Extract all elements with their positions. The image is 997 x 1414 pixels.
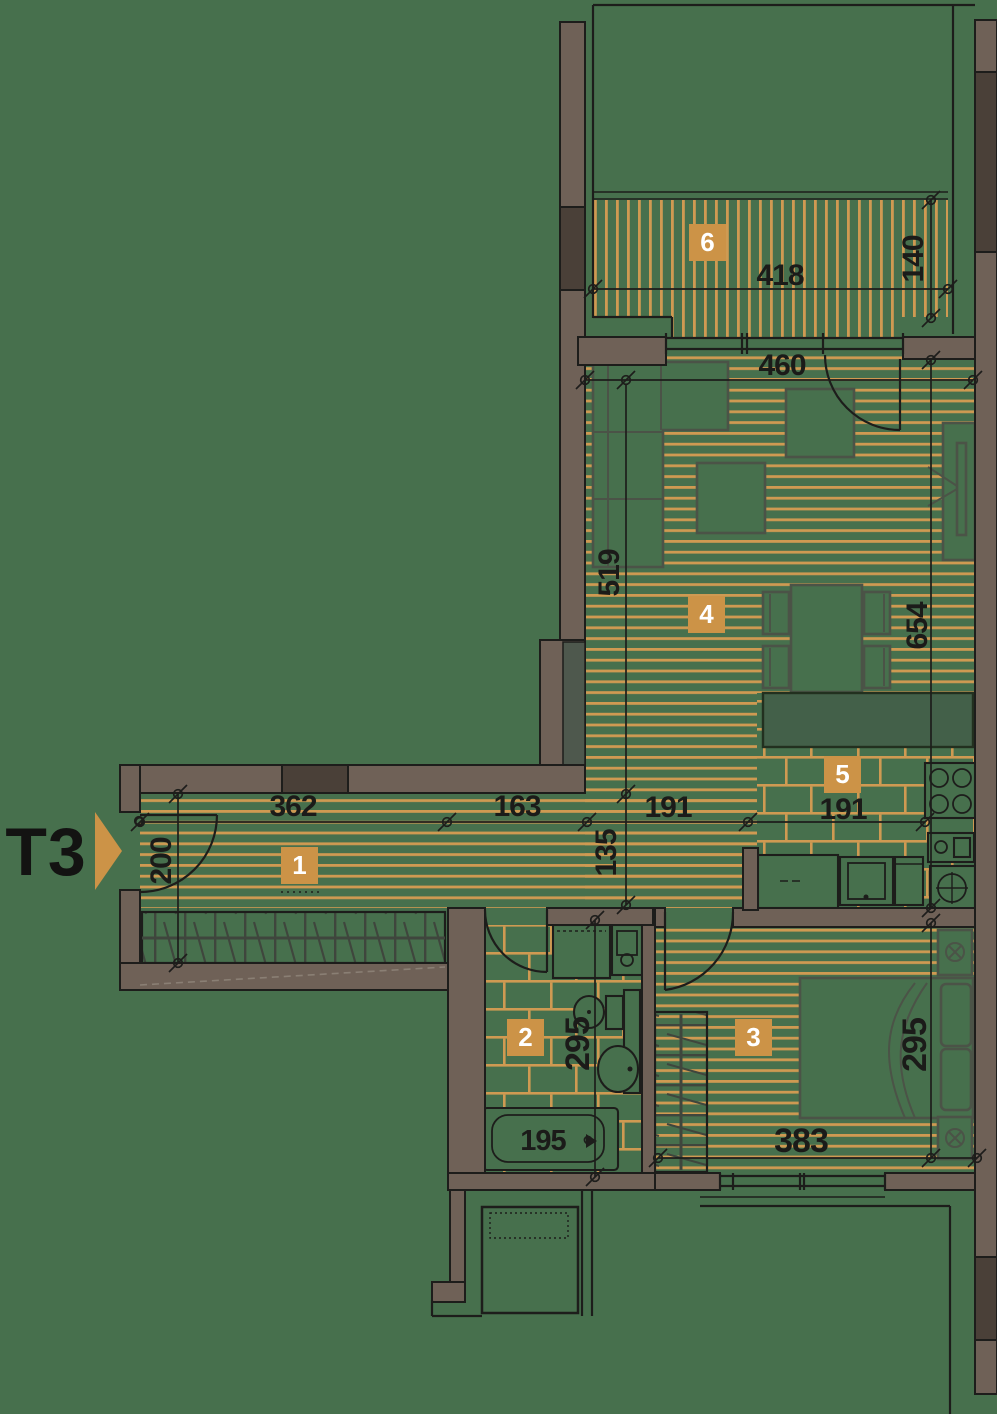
room-badge-2: 2 xyxy=(507,1019,544,1056)
coffee-table xyxy=(697,463,765,533)
kitchen-sink xyxy=(928,833,974,862)
dim-hall-segment-1: 362 xyxy=(243,792,343,822)
dim-hall-segment-3: 191 xyxy=(618,793,718,823)
stove xyxy=(925,763,975,818)
dim-hall-segment-2: 163 xyxy=(467,792,567,822)
dim-bathtub-length: 195 xyxy=(493,1126,593,1156)
dim-living-width: 460 xyxy=(732,351,832,381)
dim-balcony-depth: 140 xyxy=(899,209,929,309)
shaft-outline xyxy=(482,1207,578,1313)
room-badge-5: 5 xyxy=(824,756,861,793)
dim-bedroom-width: 383 xyxy=(751,1126,851,1156)
washbasin xyxy=(598,1046,638,1092)
dim-bedroom-depth: 295 xyxy=(900,995,930,1095)
floor-plan: T3 418 140 460 519 654 362 163 191 191 1… xyxy=(0,0,997,1414)
hall-closet xyxy=(142,912,445,963)
bedroom-wardrobe xyxy=(655,1012,707,1172)
room-badge-3: 3 xyxy=(735,1019,772,1056)
room-badge-6: 6 xyxy=(689,224,726,261)
dim-hall-depth: 135 xyxy=(592,803,622,903)
dim-living-right-depth: 654 xyxy=(903,576,933,676)
room-badge-4: 4 xyxy=(688,596,725,633)
kitchen-counter xyxy=(763,693,973,747)
washing-machine xyxy=(553,925,610,978)
dim-balcony-width: 418 xyxy=(730,261,830,291)
plan-drawing xyxy=(0,0,997,1414)
kitchen-appliances xyxy=(758,855,923,908)
dim-kitchen-width: 191 xyxy=(793,795,893,825)
nightstand-top xyxy=(938,930,972,975)
dim-living-left-depth: 519 xyxy=(595,523,625,623)
nightstand-bottom xyxy=(938,1117,972,1159)
unit-label: T3 xyxy=(0,816,92,888)
exterior-outlines xyxy=(432,1190,950,1414)
room-badge-1: 1 xyxy=(281,847,318,884)
dim-bathroom-depth: 295 xyxy=(563,994,593,1094)
entry-arrow xyxy=(95,812,122,890)
dim-entry-width: 200 xyxy=(147,811,177,911)
bed xyxy=(800,978,973,1118)
bathroom-corner-sink xyxy=(612,925,642,975)
armchair xyxy=(786,389,854,457)
